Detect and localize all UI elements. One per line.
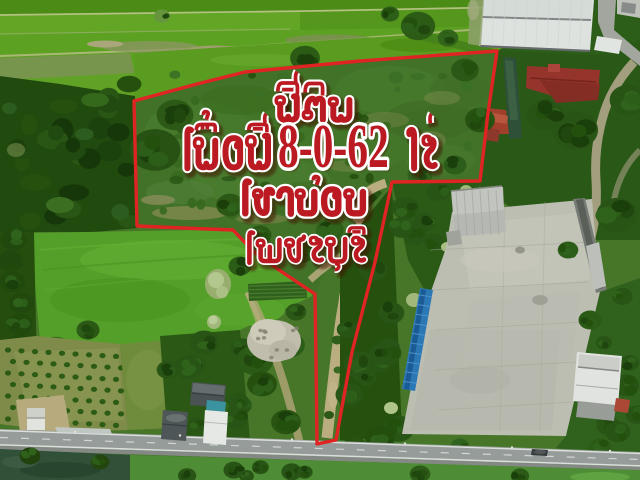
svg-text:8-0-62: 8-0-62 [278,110,389,181]
